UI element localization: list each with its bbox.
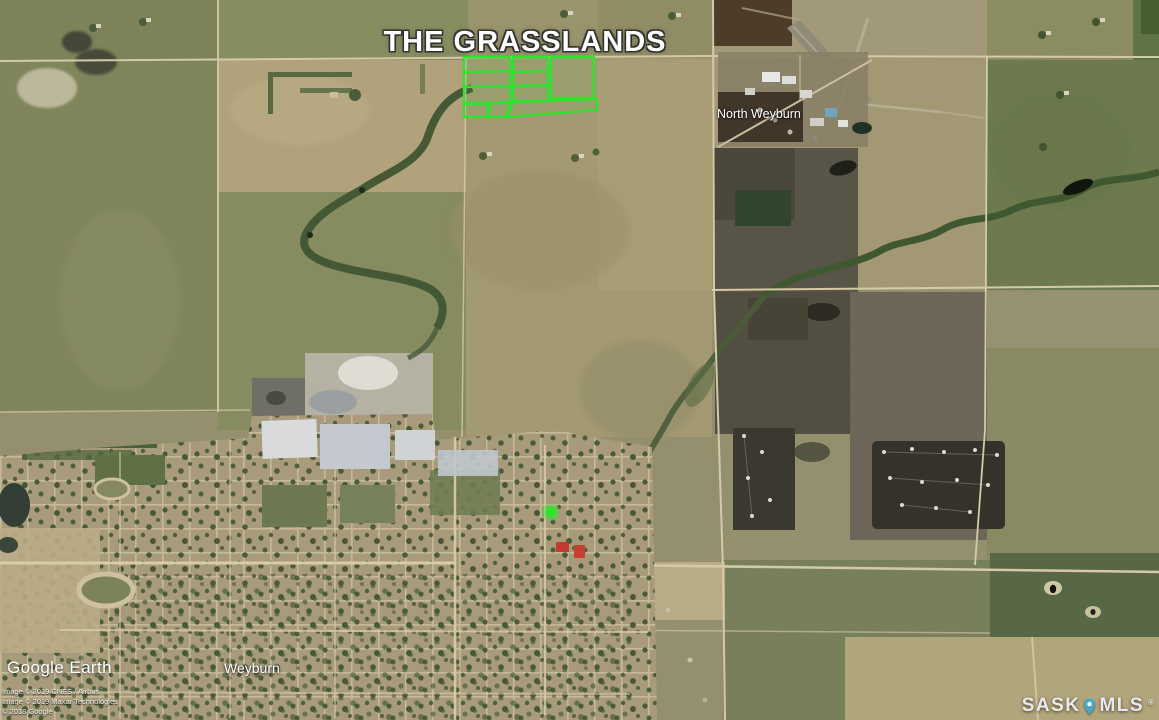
north-weyburn-cluster [718, 52, 872, 147]
parcel-boundaries [464, 57, 597, 117]
label-north-weyburn: North Weyburn [717, 107, 801, 121]
copyright-line-1: Image © 2019 CNES / Airbus [2, 687, 118, 697]
map-pin-icon [1083, 698, 1096, 715]
map-title: THE GRASSLANDS [378, 26, 672, 59]
brand-sask-text: SASK [1022, 695, 1081, 717]
property-marker [542, 503, 560, 521]
brand-mls-text: MLS [1099, 695, 1144, 717]
google-earth-watermark: Google Earth [7, 658, 112, 678]
satellite-map-view[interactable]: THE GRASSLANDS North Weyburn Weyburn Goo… [0, 0, 1159, 720]
copyright-line-3: © 2018 Google [2, 707, 118, 717]
copyright-line-2: Image © 2019 Maxar Technologies [2, 697, 118, 707]
sask-mls-logo: SASK MLS® [1022, 695, 1154, 717]
copyright-attribution: Image © 2019 CNES / Airbus Image © 2019 … [2, 687, 118, 717]
satellite-imagery [0, 0, 1159, 720]
label-weyburn: Weyburn [224, 660, 280, 676]
brand-registered-mark: ® [1148, 698, 1154, 707]
